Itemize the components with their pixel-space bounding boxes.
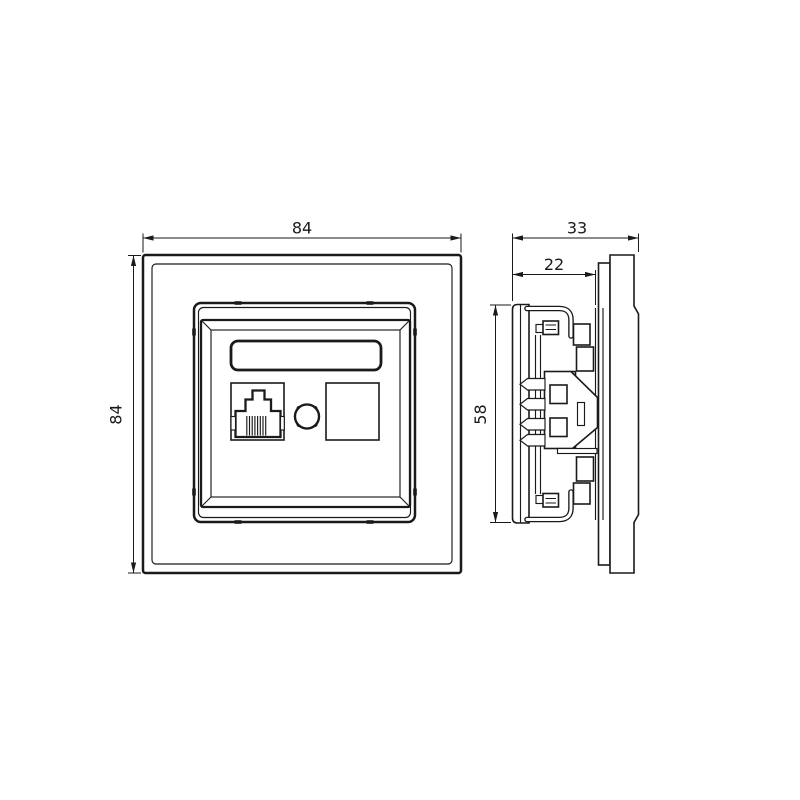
rj45-contact-pins	[247, 416, 266, 436]
dimension-side-insert-depth: 22	[513, 255, 596, 305]
label-window	[231, 341, 381, 370]
retaining-clip-mark	[192, 489, 196, 496]
arrowhead	[628, 235, 639, 240]
claw-screw-head	[543, 321, 559, 335]
arrowhead	[585, 272, 596, 277]
bevel-miter-line	[201, 497, 211, 507]
retaining-clip-mark	[235, 520, 242, 524]
phillips-screw-icon	[295, 405, 319, 429]
drawing-sheet: 84 84	[0, 0, 800, 800]
retaining-clip-mark	[413, 489, 417, 496]
rj45-side-latch	[281, 417, 285, 431]
claw-support-block	[577, 347, 594, 371]
claw-support-block	[577, 457, 594, 481]
arrowhead	[513, 235, 524, 240]
housing-slot	[578, 403, 585, 426]
arrowhead	[131, 563, 136, 574]
arrowhead	[143, 235, 154, 240]
front-view: 84 84	[107, 219, 462, 574]
arrowhead	[513, 272, 524, 277]
terminal-block	[520, 372, 598, 454]
rj45-jack	[231, 383, 284, 440]
arrowhead	[131, 256, 136, 267]
bevel-miter-line	[400, 497, 410, 507]
rj45-side-latch	[231, 417, 236, 431]
dimension-front-width: 84	[143, 219, 461, 253]
bevel-miter-line	[201, 320, 211, 330]
dimension-label: 84	[107, 404, 126, 424]
arrowhead	[493, 512, 498, 523]
claw-support-block	[574, 324, 591, 345]
bevel-miter-line	[400, 320, 410, 330]
retaining-clip-mark	[235, 301, 242, 305]
claw-screw-head	[543, 494, 559, 508]
arrowhead	[493, 305, 498, 316]
screw-head-circle	[295, 405, 319, 429]
arrowhead	[451, 235, 462, 240]
dimension-side-height: 58	[471, 305, 511, 523]
expansion-claw-top	[527, 309, 594, 372]
retaining-clip-mark	[367, 301, 374, 305]
retaining-clip-mark	[192, 329, 196, 336]
dimension-front-height: 84	[107, 256, 142, 574]
retaining-clip-mark	[413, 329, 417, 336]
dimension-label: 22	[544, 255, 564, 274]
terminal-base-plate	[558, 449, 598, 454]
spare-module-opening	[326, 383, 379, 440]
module-center-plate	[599, 263, 611, 565]
claw-support-block	[574, 483, 591, 504]
expansion-claw-bottom	[527, 457, 594, 520]
dimension-label: 58	[471, 404, 490, 424]
side-view: 33 22 58	[471, 219, 639, 574]
retaining-clip-mark	[367, 520, 374, 524]
cover-plate-profile	[610, 255, 639, 573]
dimension-label: 84	[292, 219, 312, 238]
technical-drawing: 84 84	[0, 0, 800, 800]
dimension-label: 33	[567, 219, 587, 238]
